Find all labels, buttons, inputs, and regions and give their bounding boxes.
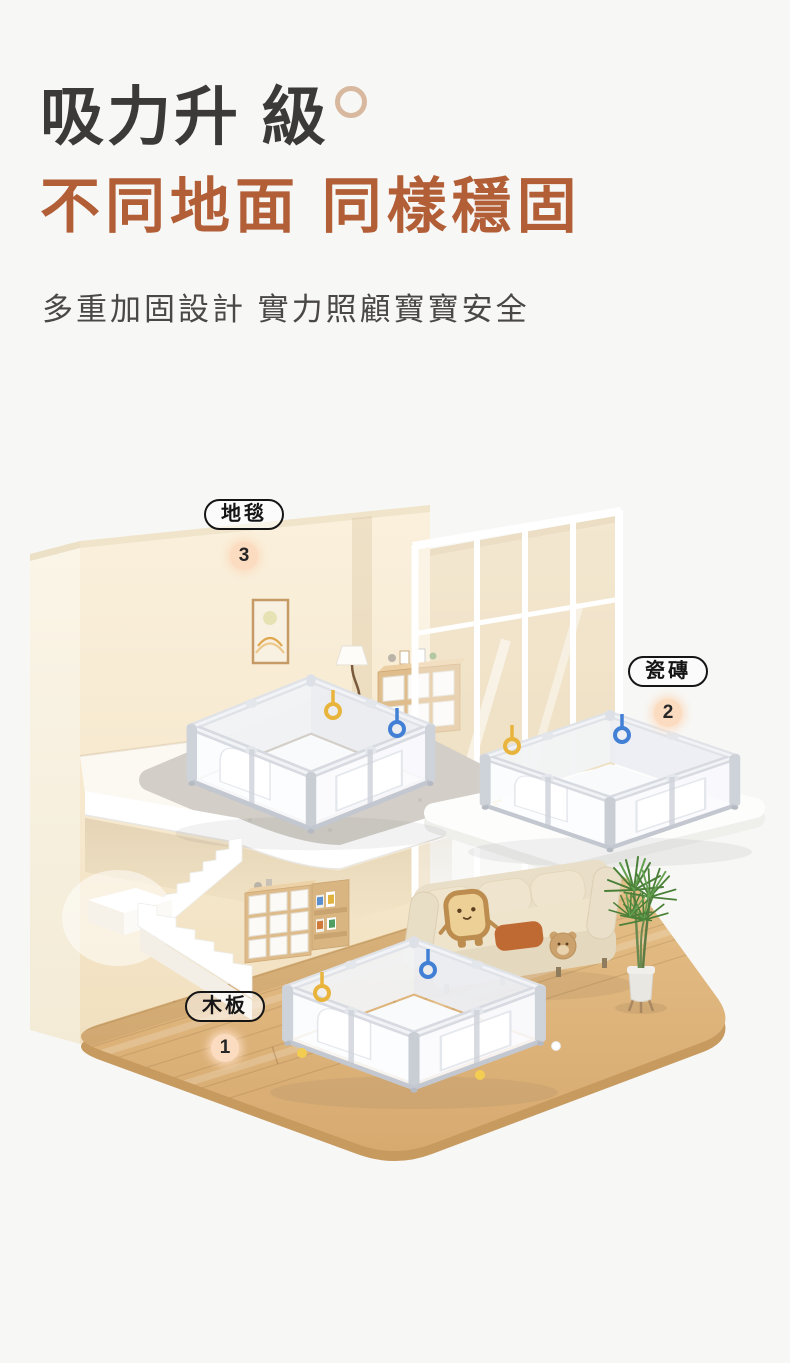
bear-pillow [550, 932, 577, 960]
page-title-text: 吸力升 級 [40, 81, 329, 153]
toy-ball [552, 1042, 561, 1051]
wall-art [253, 600, 288, 663]
product-banner: 吸力升 級 不同地面 同樣穩固 多重加固設計 實力照顧寶寶安全 [0, 0, 790, 1363]
floor-label-carpet: 地毯 3 [204, 499, 284, 570]
page: { "heading": { "title": "吸力升 級", "subtit… [0, 0, 790, 1363]
left-wall [30, 548, 80, 1044]
floor-label-wood: 木板 1 [185, 991, 265, 1062]
toy-ball [475, 1070, 485, 1080]
floor-label-wood-number: 1 [211, 1034, 239, 1062]
toy-ball [297, 1048, 307, 1058]
floor-label-tile: 瓷磚 2 [628, 656, 708, 727]
banner-header: 吸力升 級 不同地面 同樣穩固 多重加固設計 實力照顧寶寶安全 [40, 84, 582, 329]
floor-label-wood-pill: 木板 [185, 991, 265, 1022]
floor-label-carpet-number: 3 [230, 542, 258, 570]
page-title: 吸力升 級 [40, 84, 582, 151]
page-subtitle: 不同地面 同樣穩固 [40, 175, 582, 238]
floor-label-tile-number: 2 [654, 699, 682, 727]
page-description: 多重加固設計 實力照顧寶寶安全 [42, 284, 582, 329]
degree-ring-icon [335, 86, 367, 118]
floor-label-carpet-pill: 地毯 [204, 499, 284, 530]
floor-label-tile-pill: 瓷磚 [628, 656, 708, 687]
